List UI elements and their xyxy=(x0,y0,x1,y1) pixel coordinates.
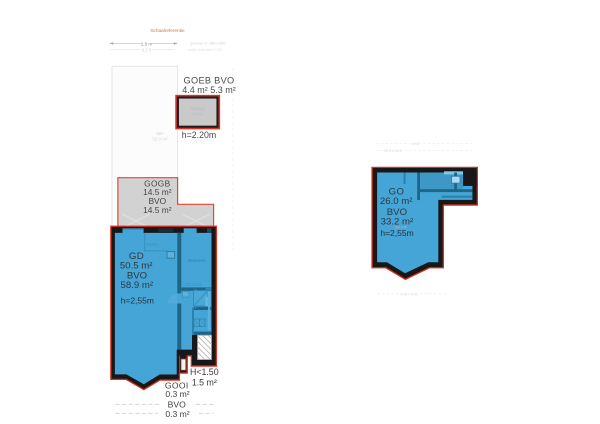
svg-text:1.5 m²: 1.5 m² xyxy=(192,377,217,387)
svg-text:21-5 x 14-9: 21-5 x 14-9 xyxy=(384,149,402,153)
svg-text:26.0 m²: 26.0 m² xyxy=(380,196,413,207)
svg-text:0.3 m²: 0.3 m² xyxy=(165,409,189,419)
svg-text:maten indicatief 1:100: maten indicatief 1:100 xyxy=(188,48,222,52)
svg-text:14.5 m²: 14.5 m² xyxy=(143,205,172,215)
svg-text:8.2 ft: 8.2 ft xyxy=(142,47,152,52)
svg-text:h=2,55m: h=2,55m xyxy=(121,295,154,305)
svg-text:H<1.50: H<1.50 xyxy=(190,367,219,377)
svg-text:4.4 m²: 4.4 m² xyxy=(192,112,204,117)
svg-text:h=2,55m: h=2,55m xyxy=(380,228,413,238)
svg-text:52.0 m²: 52.0 m² xyxy=(152,137,168,142)
svg-text:berging: berging xyxy=(191,106,206,111)
svg-text:2.5 m: 2.5 m xyxy=(141,41,153,46)
svg-text:0.3 m²: 0.3 m² xyxy=(165,389,189,399)
svg-text:slaapkamer: slaapkamer xyxy=(188,259,207,263)
svg-text:keuken: keuken xyxy=(146,243,158,247)
svg-text:Schaalreferentie: Schaalreferentie xyxy=(150,28,185,33)
svg-text:6.54: 6.54 xyxy=(412,142,419,146)
svg-text:GOEB BVO: GOEB BVO xyxy=(184,75,235,85)
svg-text:4.58 x 4.51: 4.58 x 4.51 xyxy=(400,292,418,296)
svg-text:58.9 m²: 58.9 m² xyxy=(121,280,154,291)
svg-text:gemeten cf. NEN 2580: gemeten cf. NEN 2580 xyxy=(190,41,225,45)
svg-text:3.97 x 2.01: 3.97 x 2.01 xyxy=(185,283,202,287)
svg-text:h=2.20m: h=2.20m xyxy=(182,130,216,140)
svg-text:4.4 m² 5.3 m²: 4.4 m² 5.3 m² xyxy=(182,85,236,95)
svg-text:tuin: tuin xyxy=(156,131,164,136)
